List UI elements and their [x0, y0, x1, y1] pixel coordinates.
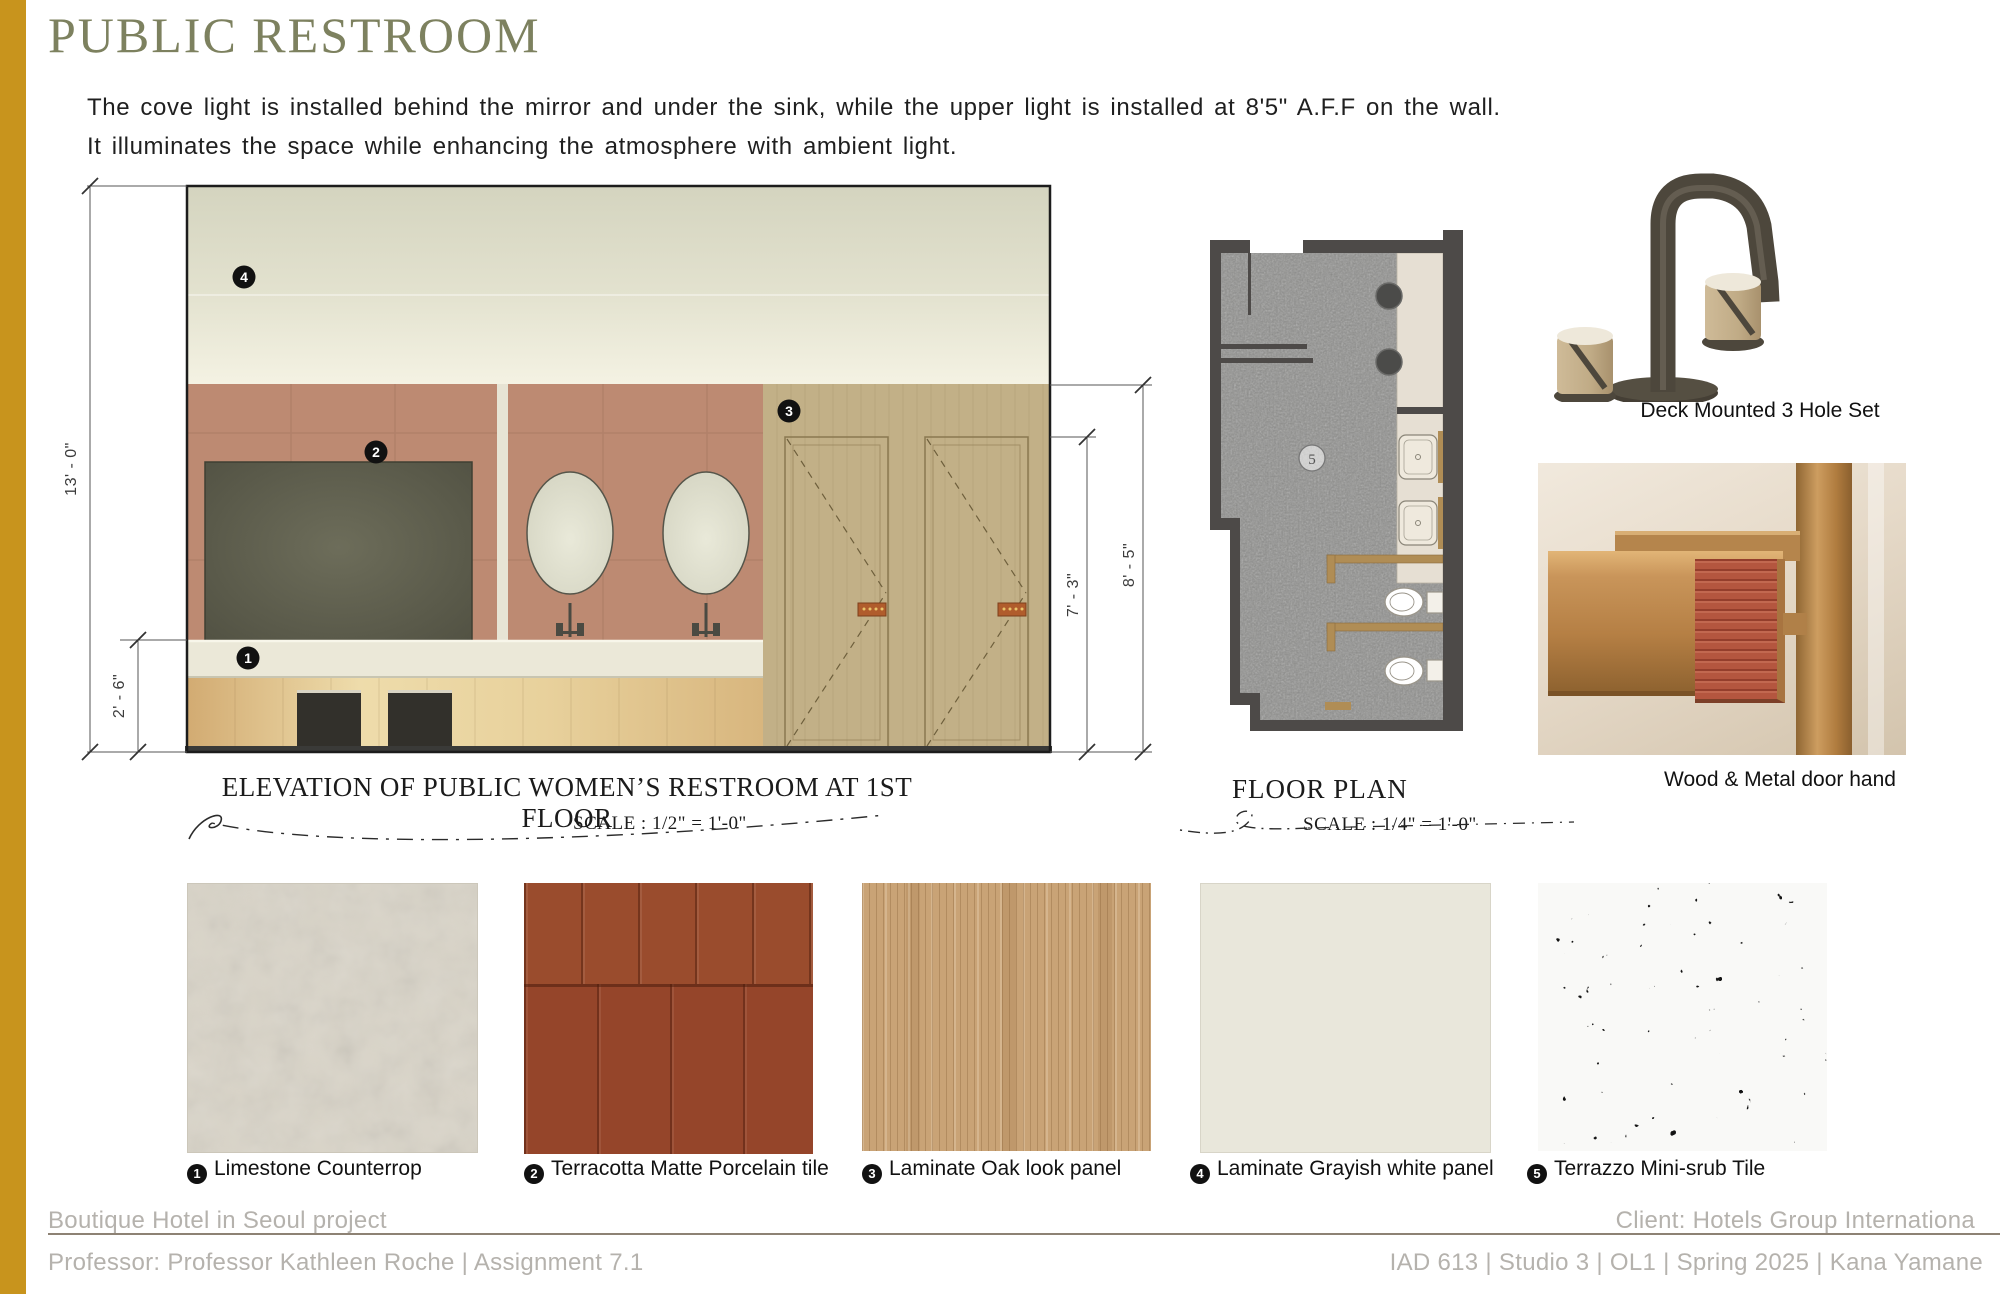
material-number-1: 1 — [187, 1164, 207, 1184]
plan-basin-1 — [1376, 283, 1402, 309]
handle-mount-stub — [1783, 613, 1807, 635]
swatch-terrazzo-tile — [1538, 883, 1827, 1151]
presentation-page: PUBLIC RESTROOM The cove light is instal… — [0, 0, 2000, 1294]
elev-stool-right — [388, 690, 452, 746]
keynote-marker-4: 4 — [233, 266, 256, 289]
door-frame-bar — [1796, 463, 1852, 755]
material-caption-3: 3Laminate Oak look panel — [862, 1157, 1121, 1184]
plan-toilet-1 — [1385, 588, 1443, 616]
dim-line-total-height — [87, 186, 187, 752]
dim-label-total-height: 13' - 0" — [63, 442, 80, 496]
material-caption-1: 1Limestone Counterrop — [187, 1157, 422, 1184]
svg-text:2: 2 — [372, 444, 380, 460]
keynote-marker-2: 2 — [365, 441, 388, 464]
elev-stool-left — [297, 690, 361, 746]
svg-text:4: 4 — [240, 269, 248, 285]
footer-divider — [48, 1233, 2000, 1235]
footer-professor: Professor: Professor Kathleen Roche | As… — [48, 1249, 643, 1277]
swatch-limestone — [187, 883, 478, 1153]
plan-basin-2 — [1376, 349, 1402, 375]
floor-plan-drawing: 5 — [1200, 225, 1500, 770]
material-number-3: 3 — [862, 1164, 882, 1184]
dim-line-counter-height — [120, 640, 187, 752]
page-title: PUBLIC RESTROOM — [48, 6, 541, 64]
swatch-oak-panel — [862, 883, 1151, 1151]
elev-countertop — [187, 640, 763, 678]
plan-room-marker: 5 — [1299, 445, 1325, 471]
plan-toilet-2 — [1385, 657, 1443, 685]
description-line-1: The cove light is installed behind the m… — [87, 94, 1501, 122]
dim-label-door-height: 7' - 3" — [1065, 573, 1082, 617]
swatch-grayish-white-panel — [1200, 883, 1491, 1153]
faucet-product-label: Deck Mounted 3 Hole Set — [1630, 399, 1890, 423]
footer-project-title: Boutique Hotel in Seoul project — [48, 1207, 387, 1235]
plan-sink-2 — [1399, 497, 1443, 549]
elev-stall-section — [763, 384, 1050, 746]
terracotta-tile-top-course — [524, 883, 813, 984]
travertine-inlay — [1695, 559, 1785, 703]
faucet-handle-right — [1702, 273, 1764, 351]
footer-client: Client: Hotels Group Internationa — [1616, 1207, 1975, 1235]
swatch-terracotta-tile — [524, 883, 813, 1151]
material-label-1: Limestone Counterrop — [214, 1157, 422, 1180]
svg-text:3: 3 — [785, 403, 793, 419]
material-caption-5: 5Terrazzo Mini-srub Tile — [1527, 1157, 1765, 1184]
glass-edge — [1868, 463, 1884, 755]
faucet-handle-left — [1554, 327, 1616, 402]
material-number-4: 4 — [1190, 1164, 1210, 1184]
material-number-2: 2 — [524, 1164, 544, 1184]
material-caption-4: 4Laminate Grayish white panel — [1190, 1157, 1494, 1184]
material-label-4: Laminate Grayish white panel — [1217, 1157, 1494, 1180]
door-handle-product-label: Wood & Metal door hand — [1630, 768, 1930, 792]
accent-gold-bar — [0, 0, 26, 1294]
elevation-caption-flourish — [185, 803, 915, 845]
keynote-marker-3: 3 — [778, 400, 801, 423]
plan-partition-stub — [1325, 702, 1351, 710]
elevation-drawing: 13' - 0" 2' - 6" 8' - 5" 7' - 3" 4 — [40, 175, 1165, 770]
material-caption-2: 2Terracotta Matte Porcelain tile — [524, 1157, 829, 1184]
dim-label-wall-height: 8' - 5" — [1121, 543, 1138, 587]
elev-oval-mirror-right — [663, 472, 749, 594]
floor-plan-caption-flourish — [1178, 806, 1578, 844]
plan-sink-1 — [1399, 431, 1443, 483]
door-handle-product-image — [1538, 463, 1906, 755]
description-line-2: It illuminates the space while enhancing… — [87, 133, 957, 161]
svg-text:5: 5 — [1308, 452, 1316, 468]
keynote-marker-1: 1 — [237, 647, 260, 670]
material-label-2: Terracotta Matte Porcelain tile — [551, 1157, 829, 1180]
elev-upper-wall — [187, 186, 1050, 384]
elev-mirror-panel — [205, 462, 472, 652]
terracotta-tile-bottom-course — [524, 984, 813, 1154]
material-number-5: 5 — [1527, 1164, 1547, 1184]
elev-wall-divider — [497, 384, 508, 640]
faucet-product-image — [1545, 152, 1815, 402]
elev-oval-mirror-left — [527, 472, 613, 594]
svg-text:1: 1 — [244, 650, 252, 666]
dim-label-counter-height: 2' - 6" — [111, 674, 128, 718]
material-label-3: Laminate Oak look panel — [889, 1157, 1121, 1180]
footer-course-info: IAD 613 | Studio 3 | OL1 | Spring 2025 |… — [1390, 1249, 1983, 1277]
material-label-5: Terrazzo Mini-srub Tile — [1554, 1157, 1765, 1180]
floor-plan-caption: FLOOR PLAN — [1232, 774, 1408, 805]
